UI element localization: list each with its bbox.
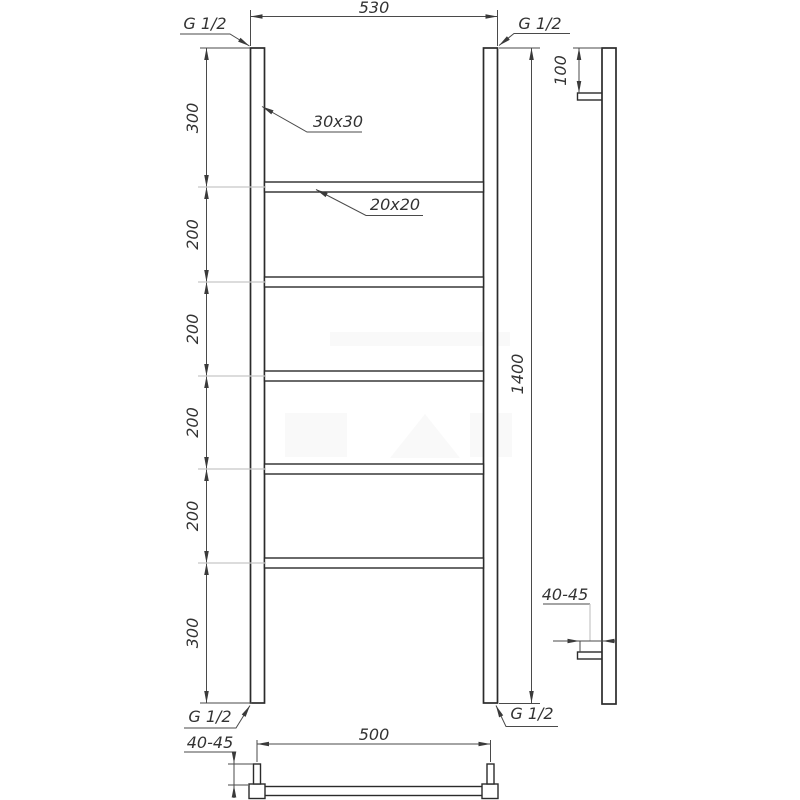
wall-bracket-top — [578, 93, 603, 100]
dim-label-200-3: 200 — [183, 407, 202, 438]
dim-label-pin-height: 40-45 — [187, 733, 234, 752]
dim-label-200-1: 200 — [183, 219, 202, 250]
post-profile-callout: 30x30 — [262, 107, 363, 133]
thread-label-bottom-right: G 1/2 — [510, 704, 553, 723]
thread-callout-top-left: G 1/2 — [180, 14, 250, 46]
rung-4 — [265, 464, 484, 474]
dim-label-530: 530 — [359, 0, 390, 17]
dim-label-500: 500 — [359, 725, 390, 744]
thread-label-bottom-left: G 1/2 — [188, 707, 231, 726]
thread-callout-bottom-right: G 1/2 — [496, 704, 558, 727]
rung-3 — [265, 371, 484, 381]
dim-label-1400: 1400 — [508, 354, 527, 395]
rung-2 — [265, 277, 484, 287]
right-connection-pin — [487, 764, 494, 784]
bottom-right-post-section — [482, 784, 498, 799]
towel-rail-drawing: 530 300 200 200 200 200 300 1400 G 1/2 — [0, 0, 800, 800]
thread-callout-top-right: G 1/2 — [499, 14, 570, 46]
dim-label-200-2: 200 — [183, 314, 202, 345]
post-profile-label: 30x30 — [313, 112, 363, 131]
thread-label-top-right: G 1/2 — [518, 14, 561, 33]
wall-bracket-bottom — [578, 652, 603, 659]
dim-bracket-offset-100: 100 — [551, 48, 601, 93]
dim-height-1400: 1400 — [499, 48, 540, 704]
dim-label-300-bottom: 300 — [183, 618, 202, 649]
rung-profile-label: 20x20 — [370, 195, 420, 214]
dim-label-100: 100 — [551, 55, 570, 86]
dim-width-530: 530 — [251, 0, 498, 46]
thread-callout-bottom-left: G 1/2 — [184, 706, 250, 729]
bottom-view: 500 40-45 — [184, 725, 498, 799]
dim-label-200-4: 200 — [183, 501, 202, 532]
left-connection-pin — [254, 764, 261, 784]
dim-label-wall-clearance: 40-45 — [542, 585, 589, 604]
technical-drawing-page: 530 300 200 200 200 200 300 1400 G 1/2 — [0, 0, 800, 800]
dim-pin-height: 40-45 — [184, 733, 253, 798]
rung-1 — [265, 182, 484, 192]
rung-5 — [265, 558, 484, 568]
side-profile-bar — [602, 48, 616, 704]
thread-label-top-left: G 1/2 — [183, 14, 226, 33]
front-view — [251, 48, 498, 703]
side-view: 100 40-45 — [542, 48, 617, 704]
rung-profile-callout: 20x20 — [316, 190, 423, 216]
bottom-left-post-section — [249, 784, 265, 799]
bottom-rung-bar — [265, 787, 484, 796]
dim-port-spacing-500: 500 — [257, 725, 491, 762]
watermark — [285, 332, 512, 458]
right-rail — [484, 48, 498, 703]
dim-label-300-top: 300 — [183, 103, 202, 134]
